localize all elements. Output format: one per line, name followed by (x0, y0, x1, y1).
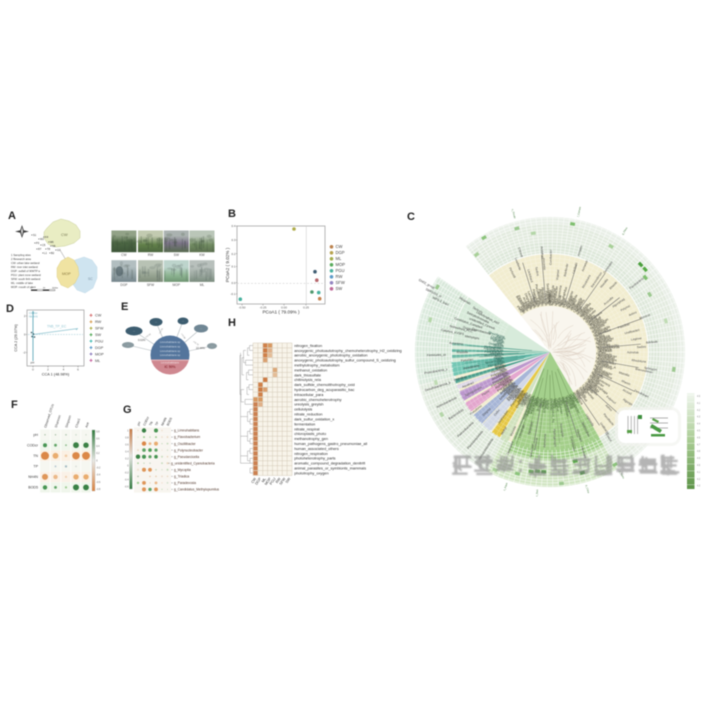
svg-text:0.2: 0.2 (125, 459, 129, 461)
svg-text:Limnohabitans: Limnohabitans (161, 360, 180, 364)
svg-text:DGP: outfall of WWTP a: DGP: outfall of WWTP a (11, 269, 40, 273)
svg-text:C5: C5 (42, 243, 46, 247)
svg-text:ML: ML (95, 359, 100, 363)
svg-text:g_Candidatus_Methylopumilus: g_Candidatus_Methylopumilus (174, 488, 219, 492)
svg-text:4.7: 4.7 (697, 444, 701, 446)
svg-text:aromatic_compound_degradation_: aromatic_compound_degradation_denitrifi (294, 462, 365, 466)
svg-text:E: E (121, 301, 128, 313)
svg-text:4.8: 4.8 (697, 451, 701, 453)
svg-text:methanotrophy_gen: methanotrophy_gen (294, 437, 328, 441)
svg-text:g_Triadica: g_Triadica (174, 475, 189, 479)
svg-text:p_Chlor: p_Chlor (585, 485, 590, 494)
svg-text:4.5: 4.5 (697, 431, 701, 433)
svg-text:B: B (228, 208, 236, 220)
svg-text:0.25: 0.25 (303, 306, 309, 310)
svg-text:Shannon: Shannon (54, 414, 62, 428)
svg-text:RW: RW (95, 320, 102, 324)
svg-text:4.1: 4.1 (697, 403, 701, 405)
svg-text:MOP: MOP (173, 283, 181, 287)
svg-text:Acinetob: Acinetob (627, 350, 639, 354)
svg-text:phototrophy_oxygen: phototrophy_oxygen (294, 471, 328, 475)
svg-text:A: A (8, 210, 16, 222)
svg-text:0.4: 0.4 (125, 452, 129, 454)
svg-text:RW: RW (336, 274, 343, 279)
svg-text:0.2: 0.2 (96, 452, 100, 455)
svg-text:···: ··· (182, 320, 185, 323)
svg-text:g_Polynucleobacter: g_Polynucleobacter (174, 448, 204, 452)
svg-text:human_associated_others: human_associated_others (294, 447, 339, 451)
svg-text:F: F (11, 399, 18, 411)
svg-text:Hydrogenoph: Hydrogenoph (553, 429, 558, 448)
svg-text:22.44%: 22.44% (196, 346, 205, 350)
svg-text:G3: G3 (57, 248, 61, 252)
svg-text:D: D (6, 303, 14, 315)
svg-text:methylotrophy_metabolism: methylotrophy_metabolism (294, 364, 339, 368)
svg-text:L1: L1 (44, 251, 47, 255)
svg-text:0.8: 0.8 (125, 438, 129, 440)
svg-text:4.2: 4.2 (697, 479, 701, 481)
svg-text:Curvibacter: Curvibacter (549, 250, 553, 265)
svg-text:Methylop: Methylop (599, 347, 612, 351)
svg-text:···: ··· (200, 328, 203, 331)
svg-text:TN5_TP_EC: TN5_TP_EC (47, 325, 67, 329)
svg-text:Limnohabitans sp: Limnohabitans sp (160, 340, 181, 344)
svg-text:nitrate_reduction: nitrate_reduction (294, 413, 322, 417)
svg-text:ureolysis_greyish: ureolysis_greyish (294, 403, 323, 407)
svg-text:4.6: 4.6 (697, 437, 701, 439)
svg-text:CW: CW (61, 232, 68, 237)
svg-text:RW: RW (148, 253, 154, 257)
svg-text:-0.2: -0.2 (125, 473, 130, 475)
svg-text:NH4-N: NH4-N (29, 315, 38, 319)
svg-text:SW: SW (285, 476, 292, 484)
svg-text:0.2: 0.2 (231, 252, 236, 256)
svg-text:B2: B2 (51, 251, 55, 255)
svg-text:anoxygenic_photoautotrophy_sul: anoxygenic_photoautotrophy_sulfur_compou… (294, 359, 396, 363)
svg-text:···: ··· (155, 321, 158, 324)
svg-text:MOP: mouth of plant: MOP: mouth of plant (11, 285, 36, 289)
svg-text:KW: KW (199, 253, 205, 257)
svg-text:ML: ML (200, 283, 205, 287)
svg-text:PGU: PGU (95, 339, 103, 343)
svg-text:CW: CW (95, 314, 102, 318)
svg-text:50: 50 (43, 288, 46, 290)
svg-text:G: G (123, 404, 132, 416)
svg-text:PCoA2 ( 9.02% ): PCoA2 ( 9.02% ) (225, 247, 230, 282)
svg-text:DGP: DGP (95, 346, 104, 350)
svg-text:hydrocarbon_deg_acuparasitic_b: hydrocarbon_deg_acuparasitic_bac (294, 388, 354, 392)
svg-text:4.0: 4.0 (697, 396, 701, 398)
svg-text:pH: pH (136, 420, 142, 426)
svg-text:TN: TN (148, 420, 154, 426)
svg-text:-0.50: -0.50 (239, 306, 246, 310)
svg-text:fermentation: fermentation (294, 422, 315, 426)
svg-text:0.8: 0.8 (96, 431, 100, 434)
svg-text:0: 0 (32, 368, 34, 372)
svg-text:RW: river inlet wetland: RW: river inlet wetland (11, 265, 38, 269)
svg-text:MOP: MOP (62, 272, 71, 276)
svg-text:···: ··· (133, 330, 136, 333)
svg-text:TP: TP (154, 421, 159, 426)
svg-text:6: 6 (77, 368, 79, 372)
svg-text:-0.4: -0.4 (125, 480, 130, 482)
svg-text:ML: middle of lake: ML: middle of lake (11, 281, 33, 285)
svg-text:dark_sulfur_oxidation_x: dark_sulfur_oxidation_x (294, 418, 334, 422)
svg-text:Limnohabitans sp: Limnohabitans sp (160, 349, 181, 353)
svg-text:S1: S1 (33, 233, 37, 237)
svg-text:g_Pseudarcicella: g_Pseudarcicella (174, 455, 199, 459)
svg-text:g_Oscillibacter: g_Oscillibacter (174, 442, 197, 446)
svg-text:R7: R7 (38, 247, 42, 251)
svg-text:4.3: 4.3 (697, 486, 701, 488)
svg-text:TP: TP (33, 465, 38, 469)
svg-text:W2: W2 (40, 237, 44, 241)
svg-text:nitrogen_fixation: nitrogen_fixation (294, 344, 322, 348)
svg-text:pH: pH (33, 433, 38, 437)
svg-text:-0.2: -0.2 (96, 467, 101, 470)
svg-text:0.6: 0.6 (96, 438, 100, 441)
svg-text:Observed_OTUs: Observed_OTUs (43, 403, 55, 428)
svg-text:2: 2 (47, 368, 49, 372)
svg-text:H: H (228, 317, 236, 329)
svg-text:PGU: plant zone wetland: PGU: plant zone wetland (11, 273, 41, 277)
svg-text:2 Research area: 2 Research area (11, 257, 31, 261)
svg-text:4.1: 4.1 (697, 472, 701, 474)
svg-text:100km: 100km (52, 288, 58, 290)
svg-text:P3: P3 (36, 241, 40, 245)
svg-text:r=0.82: r=0.82 (145, 332, 152, 338)
svg-text:o_Rhodo: o_Rhodo (511, 209, 517, 220)
svg-text:-0.8: -0.8 (96, 488, 101, 491)
svg-text:CCA 2 (29.07%): CCA 2 (29.07%) (14, 324, 18, 352)
svg-text:chitinolysis_rela: chitinolysis_rela (294, 378, 322, 382)
svg-text:SFW: SFW (95, 327, 104, 331)
svg-text:photoheterotrophy_parts: photoheterotrophy_parts (294, 457, 335, 461)
svg-text:g_unidentified_Cyanobacteria: g_unidentified_Cyanobacteria (171, 461, 215, 465)
svg-text:BOD5: BOD5 (28, 486, 38, 490)
svg-text:Simpson: Simpson (64, 415, 72, 429)
svg-text:NH4N: NH4N (28, 475, 38, 479)
svg-text:4.3: 4.3 (697, 417, 701, 419)
svg-text:Chao1: Chao1 (74, 418, 81, 429)
svg-text:nitrogen_respiration: nitrogen_respiration (294, 452, 328, 456)
svg-text:Aeromona: Aeromona (542, 433, 547, 447)
svg-text:4: 4 (63, 368, 65, 372)
svg-text:g_Flavo: g_Flavo (621, 226, 628, 235)
svg-text:TN: TN (33, 454, 38, 458)
svg-text:human_pathogens_gastro_pneumon: human_pathogens_gastro_pneumoniae_all (294, 442, 367, 446)
svg-text:-0.6: -0.6 (125, 487, 130, 489)
svg-text:aerobic_anoxygenic_phototrophy: aerobic_anoxygenic_phototrophy_oxidation (294, 354, 367, 358)
svg-text:···: ··· (127, 344, 130, 347)
svg-text:g_Mycoplia: g_Mycoplia (174, 468, 191, 472)
svg-text:-0.4: -0.4 (96, 474, 101, 477)
svg-text:nitrate_respirat: nitrate_respirat (294, 427, 320, 431)
svg-text:pH: pH (31, 361, 35, 365)
svg-text:SW: SW (174, 253, 180, 257)
svg-text:4.4: 4.4 (697, 424, 701, 426)
svg-text:MOP: MOP (336, 262, 346, 267)
svg-text:s_Aqua: s_Aqua (503, 482, 509, 491)
svg-text:0: 0 (96, 459, 98, 462)
svg-text:g_Paradevosia: g_Paradevosia (174, 481, 196, 485)
svg-text:4.2: 4.2 (697, 410, 701, 412)
svg-text:SW: SW (336, 286, 343, 291)
svg-text:SW: SW (95, 333, 102, 337)
svg-text:2: 2 (24, 314, 26, 318)
svg-text:IC 50%: IC 50% (164, 365, 175, 369)
svg-text:PGU: PGU (336, 268, 345, 273)
svg-text:4.9: 4.9 (697, 458, 701, 460)
svg-text:Rhodofe: Rhodofe (457, 350, 469, 354)
svg-text:g_Flavobacterium: g_Flavobacterium (174, 435, 200, 439)
svg-text:CODcr: CODcr (27, 444, 39, 448)
svg-text:1: 1 (127, 431, 129, 433)
svg-text:dark_thiosulfate: dark_thiosulfate (294, 373, 321, 377)
svg-text:MOP: MOP (95, 352, 104, 356)
svg-text:C: C (407, 211, 415, 223)
svg-text:ML: ML (336, 256, 342, 261)
svg-text:Sedimi: Sedimi (637, 345, 647, 349)
svg-text:BOD5: BOD5 (166, 417, 173, 427)
svg-text:cellulolysis: cellulolysis (294, 408, 312, 412)
svg-text:intracellular_para: intracellular_para (294, 393, 324, 397)
svg-text:aerobic_chemoheterotrophy: aerobic_chemoheterotrophy (294, 398, 341, 402)
svg-text:0.4: 0.4 (96, 445, 100, 448)
svg-text:0: 0 (24, 333, 26, 337)
svg-text:1 Sampling sites: 1 Sampling sites (11, 253, 31, 257)
svg-text:dark_sulfide_chemolithotrophy_: dark_sulfide_chemolithotrophy_oxid (294, 383, 355, 387)
svg-text:4.0: 4.0 (697, 465, 701, 467)
svg-text:SFW: SFW (147, 283, 155, 287)
svg-text:0: 0 (127, 466, 129, 468)
svg-text:-0.1: -0.1 (230, 292, 236, 296)
svg-text:animal_parasites_or_symbionts_: animal_parasites_or_symbionts_mammals (294, 467, 366, 471)
svg-text:r=0.79: r=0.79 (192, 340, 199, 346)
svg-text:0.1: 0.1 (231, 265, 236, 269)
svg-text:c_Baci: c_Baci (535, 489, 539, 497)
svg-text:g_Limnohabitans: g_Limnohabitans (174, 429, 199, 433)
svg-text:SFW: south firth wetland: SFW: south firth wetland (11, 277, 41, 281)
svg-text:r=0.91: r=0.91 (158, 327, 164, 335)
svg-text:methanol_oxidation: methanol_oxidation (294, 368, 327, 372)
svg-text:Limnohabitans sp: Limnohabitans sp (160, 344, 181, 348)
svg-text:Firmicutes_zz: Firmicutes_zz (427, 353, 447, 358)
svg-text:PCoA1 ( 79.09% ): PCoA1 ( 79.09% ) (262, 310, 299, 315)
svg-text:anoxygenic_photoautotrophy_che: anoxygenic_photoautotrophy_chemoheterotr… (294, 349, 401, 353)
svg-text:SFW: SFW (336, 280, 345, 285)
svg-text:0.6: 0.6 (125, 445, 129, 447)
svg-text:CCA 1 (48.98%): CCA 1 (48.98%) (42, 373, 70, 377)
svg-text:CW: CW (336, 244, 343, 249)
svg-text:-0.6: -0.6 (96, 481, 101, 484)
svg-text:Limnohabitans sp: Limnohabitans sp (160, 353, 181, 357)
svg-text:CW: urban lake wetland: CW: urban lake wetland (11, 261, 40, 265)
svg-text:0.4: 0.4 (231, 224, 236, 228)
svg-text:chloroplasts_photo: chloroplasts_photo (294, 432, 326, 436)
svg-text:N9: N9 (52, 244, 56, 248)
svg-text:M6: M6 (50, 240, 54, 244)
svg-text:-2: -2 (23, 351, 26, 355)
svg-text:DGP: DGP (120, 283, 128, 287)
svg-text:DGP: DGP (336, 250, 345, 255)
svg-text:K4: K4 (45, 235, 49, 239)
svg-text:0.02%: 0.02% (138, 338, 146, 342)
svg-text:SC: SC (88, 277, 93, 281)
svg-text:···: ··· (211, 345, 214, 348)
svg-text:CW: CW (121, 253, 127, 257)
svg-text:f_Comam: f_Comam (577, 206, 582, 217)
svg-text:T8: T8 (47, 247, 51, 251)
svg-text:0.3: 0.3 (231, 238, 236, 242)
svg-text:0.0: 0.0 (231, 281, 236, 285)
svg-text:Ace: Ace (84, 422, 90, 429)
